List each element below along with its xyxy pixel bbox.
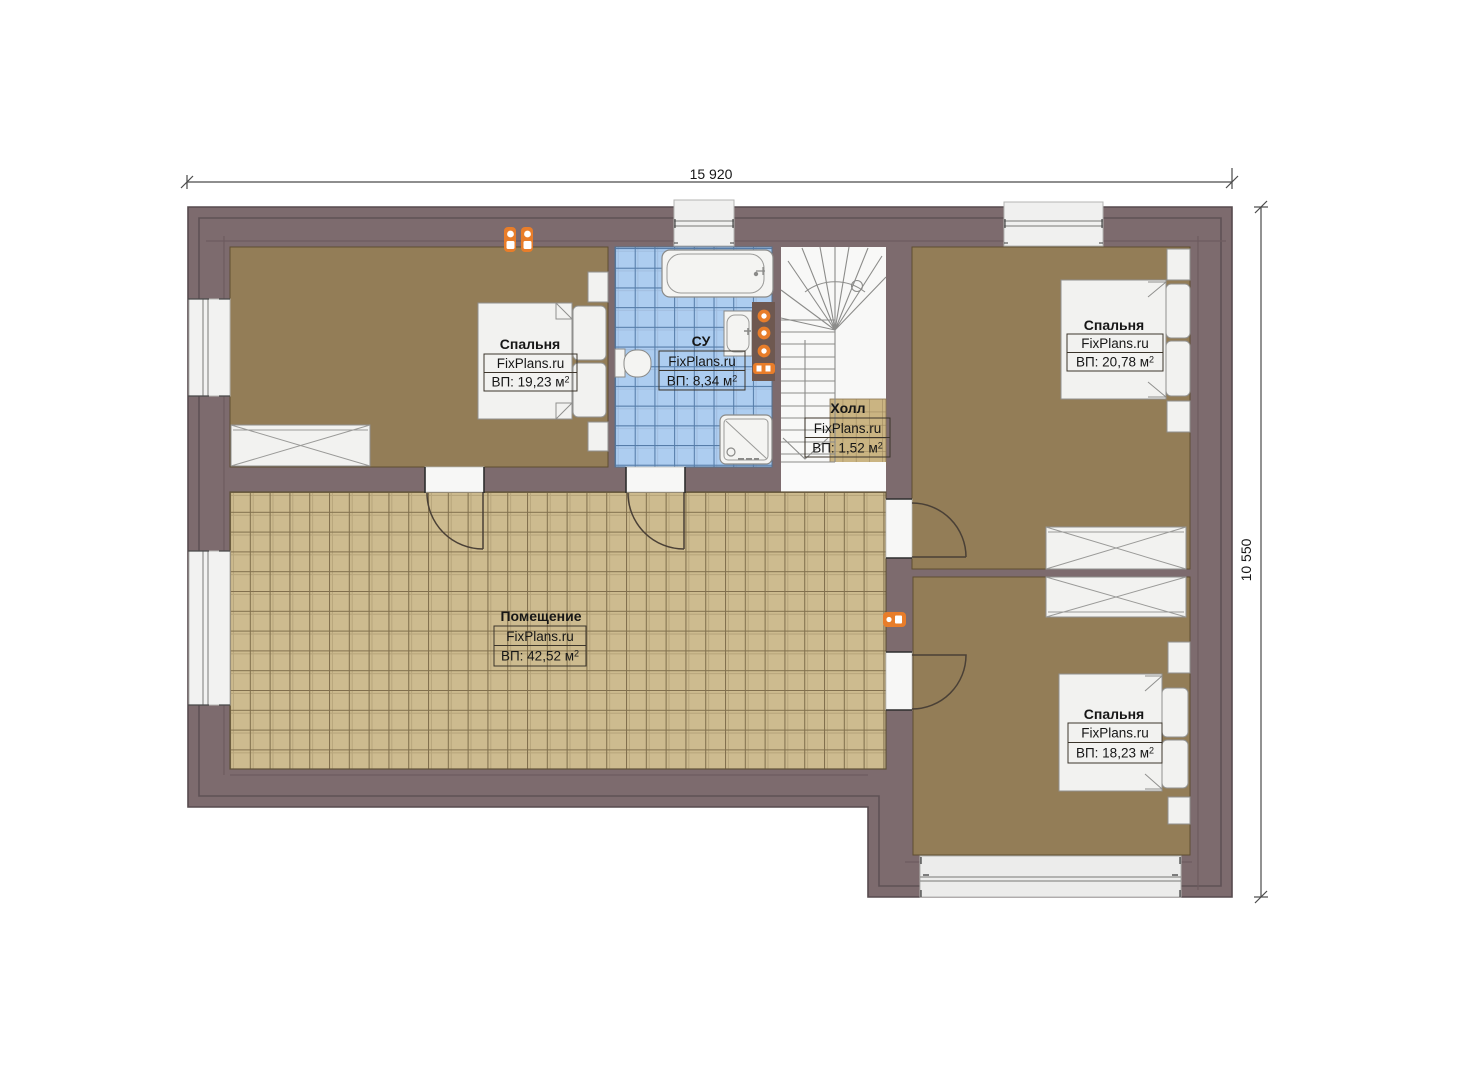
svg-text:Помещение: Помещение: [500, 608, 581, 624]
svg-text:СУ: СУ: [692, 333, 711, 349]
svg-text:ВП: 18,23 м2: ВП: 18,23 м2: [1076, 746, 1154, 761]
svg-text:ВП: 20,78 м2: ВП: 20,78 м2: [1076, 355, 1154, 370]
svg-text:15 920: 15 920: [690, 166, 733, 182]
svg-text:Спальня: Спальня: [1084, 706, 1144, 722]
svg-text:FixPlans.ru: FixPlans.ru: [497, 356, 565, 371]
svg-text:ВП: 42,52 м2: ВП: 42,52 м2: [501, 649, 579, 664]
svg-text:10 550: 10 550: [1238, 538, 1254, 581]
svg-text:Спальня: Спальня: [1084, 317, 1144, 333]
svg-text:FixPlans.ru: FixPlans.ru: [1081, 336, 1149, 351]
svg-text:FixPlans.ru: FixPlans.ru: [668, 354, 736, 369]
svg-text:Холл: Холл: [830, 400, 865, 416]
svg-text:FixPlans.ru: FixPlans.ru: [506, 629, 574, 644]
svg-text:ВП: 1,52 м2: ВП: 1,52 м2: [812, 441, 883, 456]
svg-text:ВП: 8,34 м2: ВП: 8,34 м2: [667, 374, 738, 389]
svg-text:FixPlans.ru: FixPlans.ru: [814, 421, 882, 436]
svg-text:Спальня: Спальня: [500, 336, 560, 352]
svg-text:ВП: 19,23 м2: ВП: 19,23 м2: [491, 375, 569, 390]
svg-text:FixPlans.ru: FixPlans.ru: [1081, 726, 1149, 741]
